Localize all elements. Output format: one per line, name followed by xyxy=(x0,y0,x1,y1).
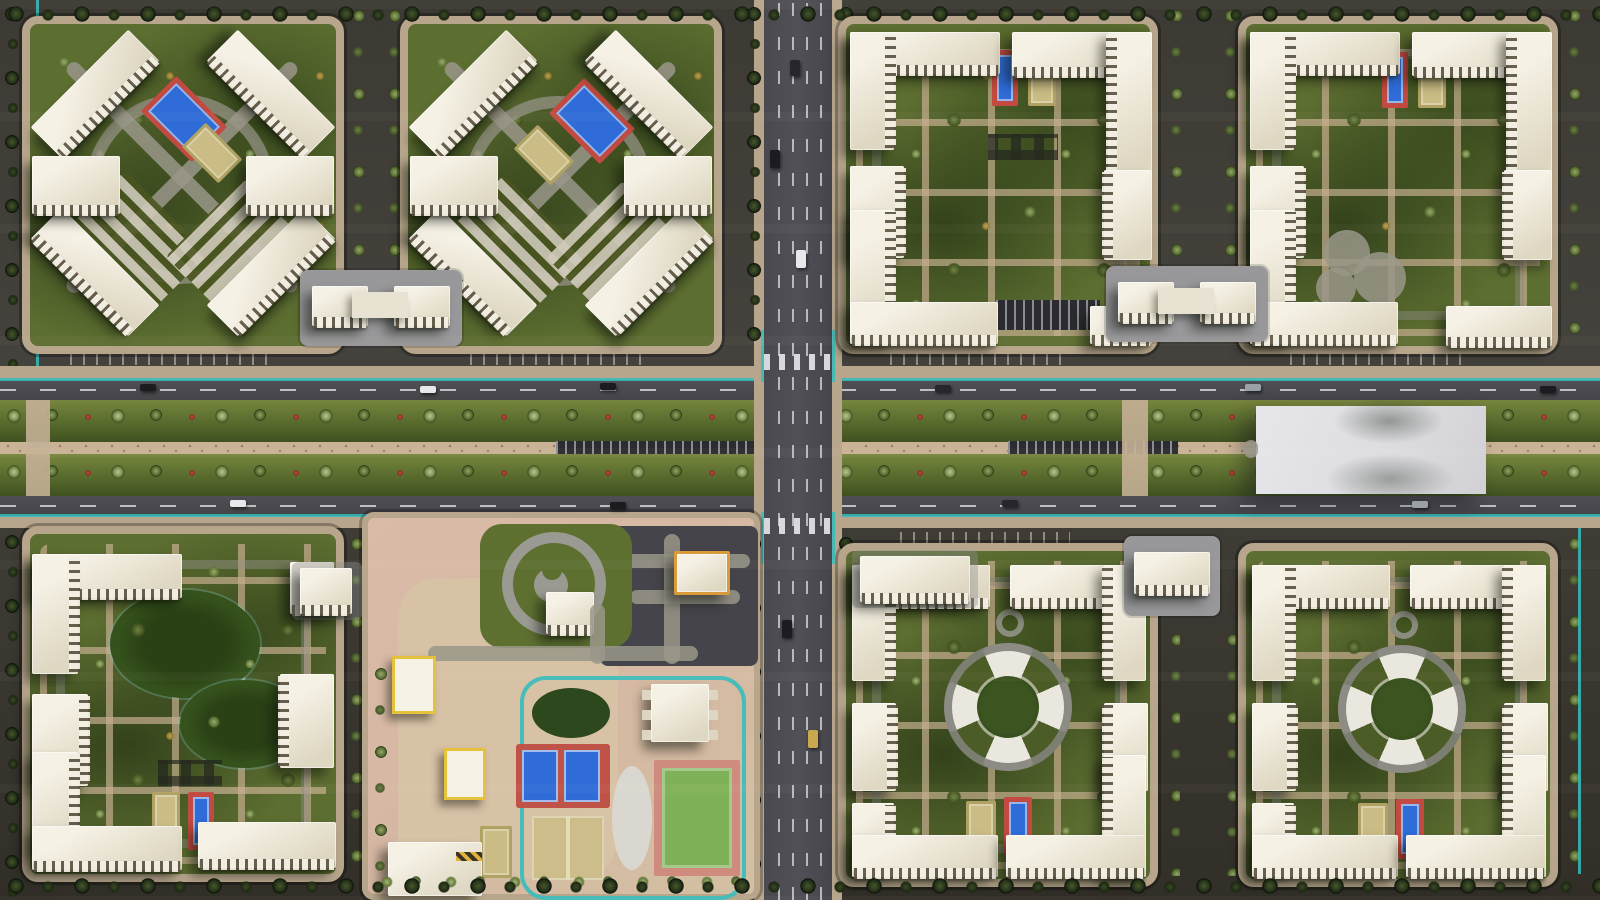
car xyxy=(140,384,156,391)
car xyxy=(808,730,818,748)
apartment-building xyxy=(1446,306,1552,346)
street-parking xyxy=(890,354,1070,365)
school-kindergarten-campus xyxy=(362,512,760,900)
apartment-building xyxy=(1250,32,1294,150)
apartment-building xyxy=(1108,32,1152,178)
mini-ring-plaza xyxy=(996,609,1024,637)
parked-vehicle-row-west xyxy=(556,441,766,454)
campus-path xyxy=(428,646,698,661)
apartment-building xyxy=(1504,565,1546,681)
tree-band-top xyxy=(0,0,1600,26)
lane-marking xyxy=(820,0,822,900)
street-trees xyxy=(1562,0,1580,354)
apartment-building xyxy=(1508,32,1552,178)
car xyxy=(600,383,616,390)
school-link xyxy=(1158,288,1214,314)
apartment-building xyxy=(32,554,78,674)
residential-block-se2 xyxy=(1238,543,1558,887)
apartment-building xyxy=(1504,170,1552,260)
parked-vehicle-row-east xyxy=(1008,441,1178,454)
apartment-building xyxy=(280,674,334,768)
oval-plaza-white xyxy=(612,766,652,870)
car xyxy=(782,620,792,638)
street-trees xyxy=(0,528,22,900)
zebra-crossing-north xyxy=(764,354,832,370)
street-parking xyxy=(1290,354,1470,365)
apartment-building xyxy=(1406,835,1546,877)
kindergarten-building xyxy=(392,656,436,714)
street-parking xyxy=(470,354,650,365)
car xyxy=(1245,384,1261,391)
street-parking xyxy=(900,532,1070,543)
campus-path xyxy=(590,604,605,664)
kindergarten-building xyxy=(444,748,486,800)
median-crosswalk-west xyxy=(26,400,50,496)
car xyxy=(790,60,800,76)
street-front-building xyxy=(860,556,970,602)
campus-trees xyxy=(368,658,388,878)
lane-marking xyxy=(778,0,780,900)
cycle-lane-east-edge xyxy=(1578,528,1581,874)
residential-block-ne2 xyxy=(1238,16,1558,354)
street-front-building xyxy=(300,568,352,614)
apartment-building xyxy=(852,703,896,791)
park-curve xyxy=(542,560,562,580)
street-trees xyxy=(742,0,762,352)
car xyxy=(770,150,780,168)
zebra-crossing-south xyxy=(764,518,832,534)
car xyxy=(1002,500,1018,507)
playground-grid xyxy=(988,134,1058,160)
residential-block-nw1 xyxy=(22,16,344,354)
car xyxy=(230,500,246,507)
compass-plaza xyxy=(944,643,1072,771)
green-field xyxy=(654,760,740,876)
school-building-orange-trim xyxy=(674,551,730,595)
apartment-building xyxy=(198,822,336,868)
car xyxy=(935,385,951,392)
masterplan-aerial-render xyxy=(0,0,1600,900)
oval-lawn-dark xyxy=(532,688,610,738)
school-link xyxy=(352,292,408,318)
car xyxy=(1412,501,1428,508)
apartment-building xyxy=(1104,170,1152,260)
apartment-building xyxy=(1252,565,1294,681)
median-crosswalk-east xyxy=(1122,400,1148,496)
apartment-building xyxy=(246,156,334,214)
apartment-building xyxy=(624,156,712,214)
apartment-building xyxy=(850,32,894,150)
white-plaza-slab xyxy=(1256,406,1486,494)
hazard-stripe-canopy xyxy=(456,852,482,861)
apartment-building xyxy=(1252,703,1296,791)
tennis-pad-red xyxy=(516,744,610,808)
compass-plaza xyxy=(1338,645,1466,773)
apartment-building xyxy=(852,835,998,877)
apartment-building xyxy=(1006,835,1146,877)
campus-building xyxy=(546,592,594,634)
lane-marking xyxy=(806,0,808,900)
street-parking xyxy=(70,354,270,365)
apartment-building xyxy=(32,156,120,214)
apartment-building xyxy=(850,302,998,344)
street-trees xyxy=(0,0,22,366)
tennis-court-blue xyxy=(522,750,558,802)
mini-ring-plaza xyxy=(1390,611,1418,639)
slab-connector xyxy=(1244,440,1258,458)
parking-lot xyxy=(996,300,1100,330)
clover-plaza xyxy=(1354,252,1406,304)
car xyxy=(420,386,436,393)
tree-band-bottom xyxy=(0,872,1600,900)
apartment-building xyxy=(1252,835,1398,877)
apartment-building xyxy=(32,826,182,870)
street-trees xyxy=(1164,624,1180,876)
tennis-court-blue xyxy=(564,750,600,802)
car xyxy=(1540,386,1556,393)
school-building xyxy=(1134,552,1210,594)
car xyxy=(610,502,626,509)
apartment-building xyxy=(410,156,498,214)
apartment-building xyxy=(1250,302,1398,344)
street-trees xyxy=(1220,624,1236,876)
playground-grid xyxy=(158,760,222,786)
lane-marking xyxy=(792,0,794,900)
car xyxy=(796,250,806,268)
